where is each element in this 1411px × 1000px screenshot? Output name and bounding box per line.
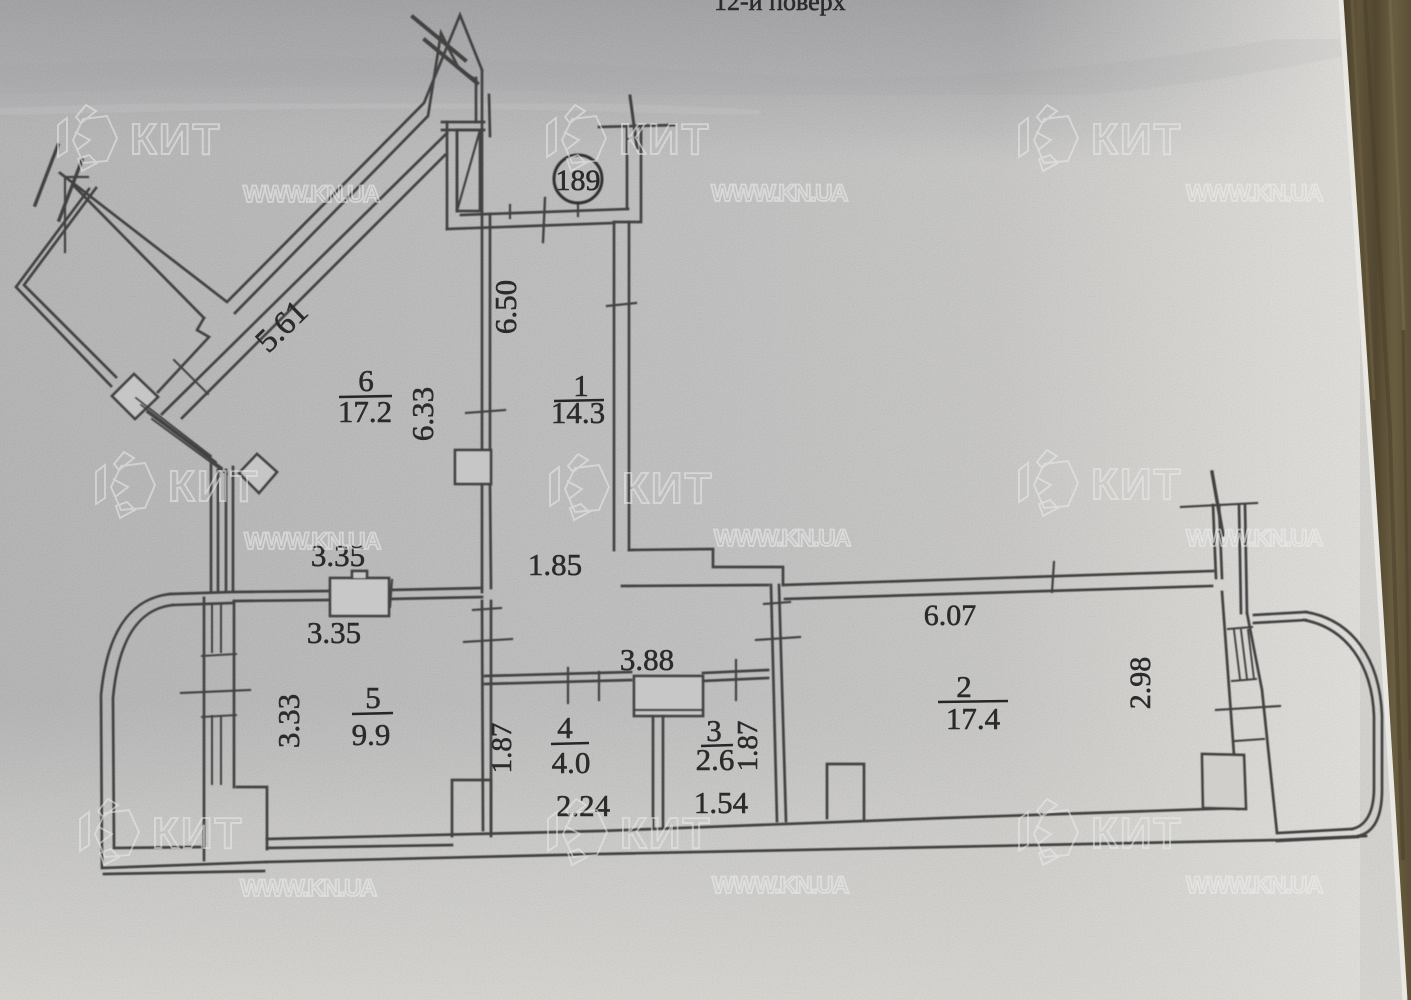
svg-text:12-й поверх: 12-й поверх [714,0,846,16]
svg-text:1.87: 1.87 [486,723,518,774]
svg-text:WWW.KN.UA: WWW.KN.UA [244,528,381,555]
svg-text:WWW.KN.UA: WWW.KN.UA [711,180,848,207]
svg-text:6.33: 6.33 [405,387,440,441]
svg-text:189: 189 [556,164,601,197]
svg-text:1.87: 1.87 [732,721,764,772]
svg-text:3.33: 3.33 [271,694,306,748]
svg-text:WWW.KN.UA: WWW.KN.UA [714,525,851,552]
svg-text:6.50: 6.50 [488,280,523,334]
svg-text:6.07: 6.07 [924,599,977,632]
svg-text:WWW.KN.UA: WWW.KN.UA [712,872,849,899]
svg-text:6: 6 [358,363,374,398]
svg-text:5: 5 [365,680,381,715]
svg-text:9.9: 9.9 [352,717,391,752]
svg-text:17.2: 17.2 [338,394,392,429]
svg-text:2.98: 2.98 [1124,657,1157,710]
svg-text:4: 4 [557,710,573,745]
svg-text:3.88: 3.88 [620,642,674,677]
svg-text:17.4: 17.4 [946,701,1001,736]
svg-text:WWW.KN.UA: WWW.KN.UA [243,181,380,208]
svg-text:WWW.KN.UA: WWW.KN.UA [240,875,377,902]
svg-text:2.6: 2.6 [696,742,735,777]
svg-text:4.0: 4.0 [552,745,591,780]
svg-text:2: 2 [956,669,972,704]
svg-text:3.35: 3.35 [307,615,361,650]
svg-text:WWW.KN.UA: WWW.KN.UA [1186,180,1323,207]
svg-text:2.24: 2.24 [556,788,611,823]
svg-text:WWW.KN.UA: WWW.KN.UA [1186,525,1323,552]
svg-text:1.85: 1.85 [528,547,582,582]
svg-text:WWW.KN.UA: WWW.KN.UA [1186,872,1323,899]
svg-text:14.3: 14.3 [551,395,605,430]
